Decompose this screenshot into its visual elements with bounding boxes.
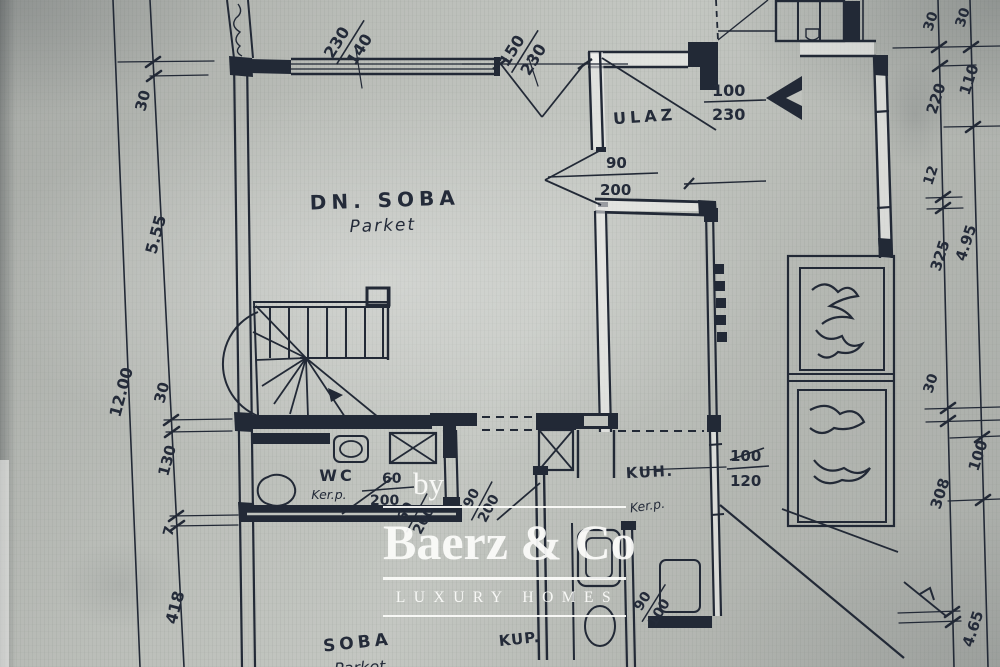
dim-label: 30 (921, 372, 942, 396)
room-floor-dn-soba: Parket (349, 215, 416, 237)
dim-label: 110 (956, 62, 983, 97)
dim-label: 12.00 (106, 365, 137, 419)
door-swings (342, 58, 766, 520)
dim-label: 30 (131, 88, 154, 113)
watermark-tagline: LUXURY HOMES (383, 589, 626, 607)
dim-label: 90 (606, 154, 627, 172)
dim-label: 220 (923, 81, 950, 116)
room-label-ulaz: ULAZ (612, 105, 676, 128)
dim-label: 100 (730, 447, 761, 465)
dim-label: 100 (965, 438, 992, 473)
dim-label: 4.65 (959, 608, 988, 649)
dim-label: 230 (712, 105, 745, 124)
watermark-rule (383, 577, 626, 580)
staircase (223, 288, 390, 420)
room-label-soba: SOBA (322, 629, 393, 656)
room-label-kup: KUP. (498, 628, 541, 650)
room-label-kuh: KUH. (625, 462, 674, 482)
watermark-brand: Baerz & Co (383, 508, 626, 577)
scanned-floor-plan: DN. SOBA Parket ULAZ WC Ker.p. KUH. Ker.… (0, 0, 1000, 667)
entrance-marker-icon (766, 76, 802, 120)
dim-label: 130 (154, 443, 179, 478)
stair-direction-arrow-icon (328, 388, 343, 402)
dim-label: 5.55 (142, 213, 171, 256)
watermark: by Baerz & Co LUXURY HOMES (383, 468, 626, 617)
dim-label: 418 (162, 589, 189, 626)
watermark-by: by (307, 468, 550, 499)
dim-label: 200 (600, 181, 631, 199)
dim-label: 100 (712, 81, 745, 100)
room-floor-kuh: Ker.p. (629, 496, 666, 516)
room-label-dn-soba: DN. SOBA (309, 185, 460, 214)
watermark-rule (383, 615, 626, 617)
dim-label: 120 (730, 472, 761, 490)
room-floor-soba: Parket (334, 657, 387, 667)
dim-label: 12 (921, 164, 942, 187)
dim-label: 325 (927, 238, 954, 273)
